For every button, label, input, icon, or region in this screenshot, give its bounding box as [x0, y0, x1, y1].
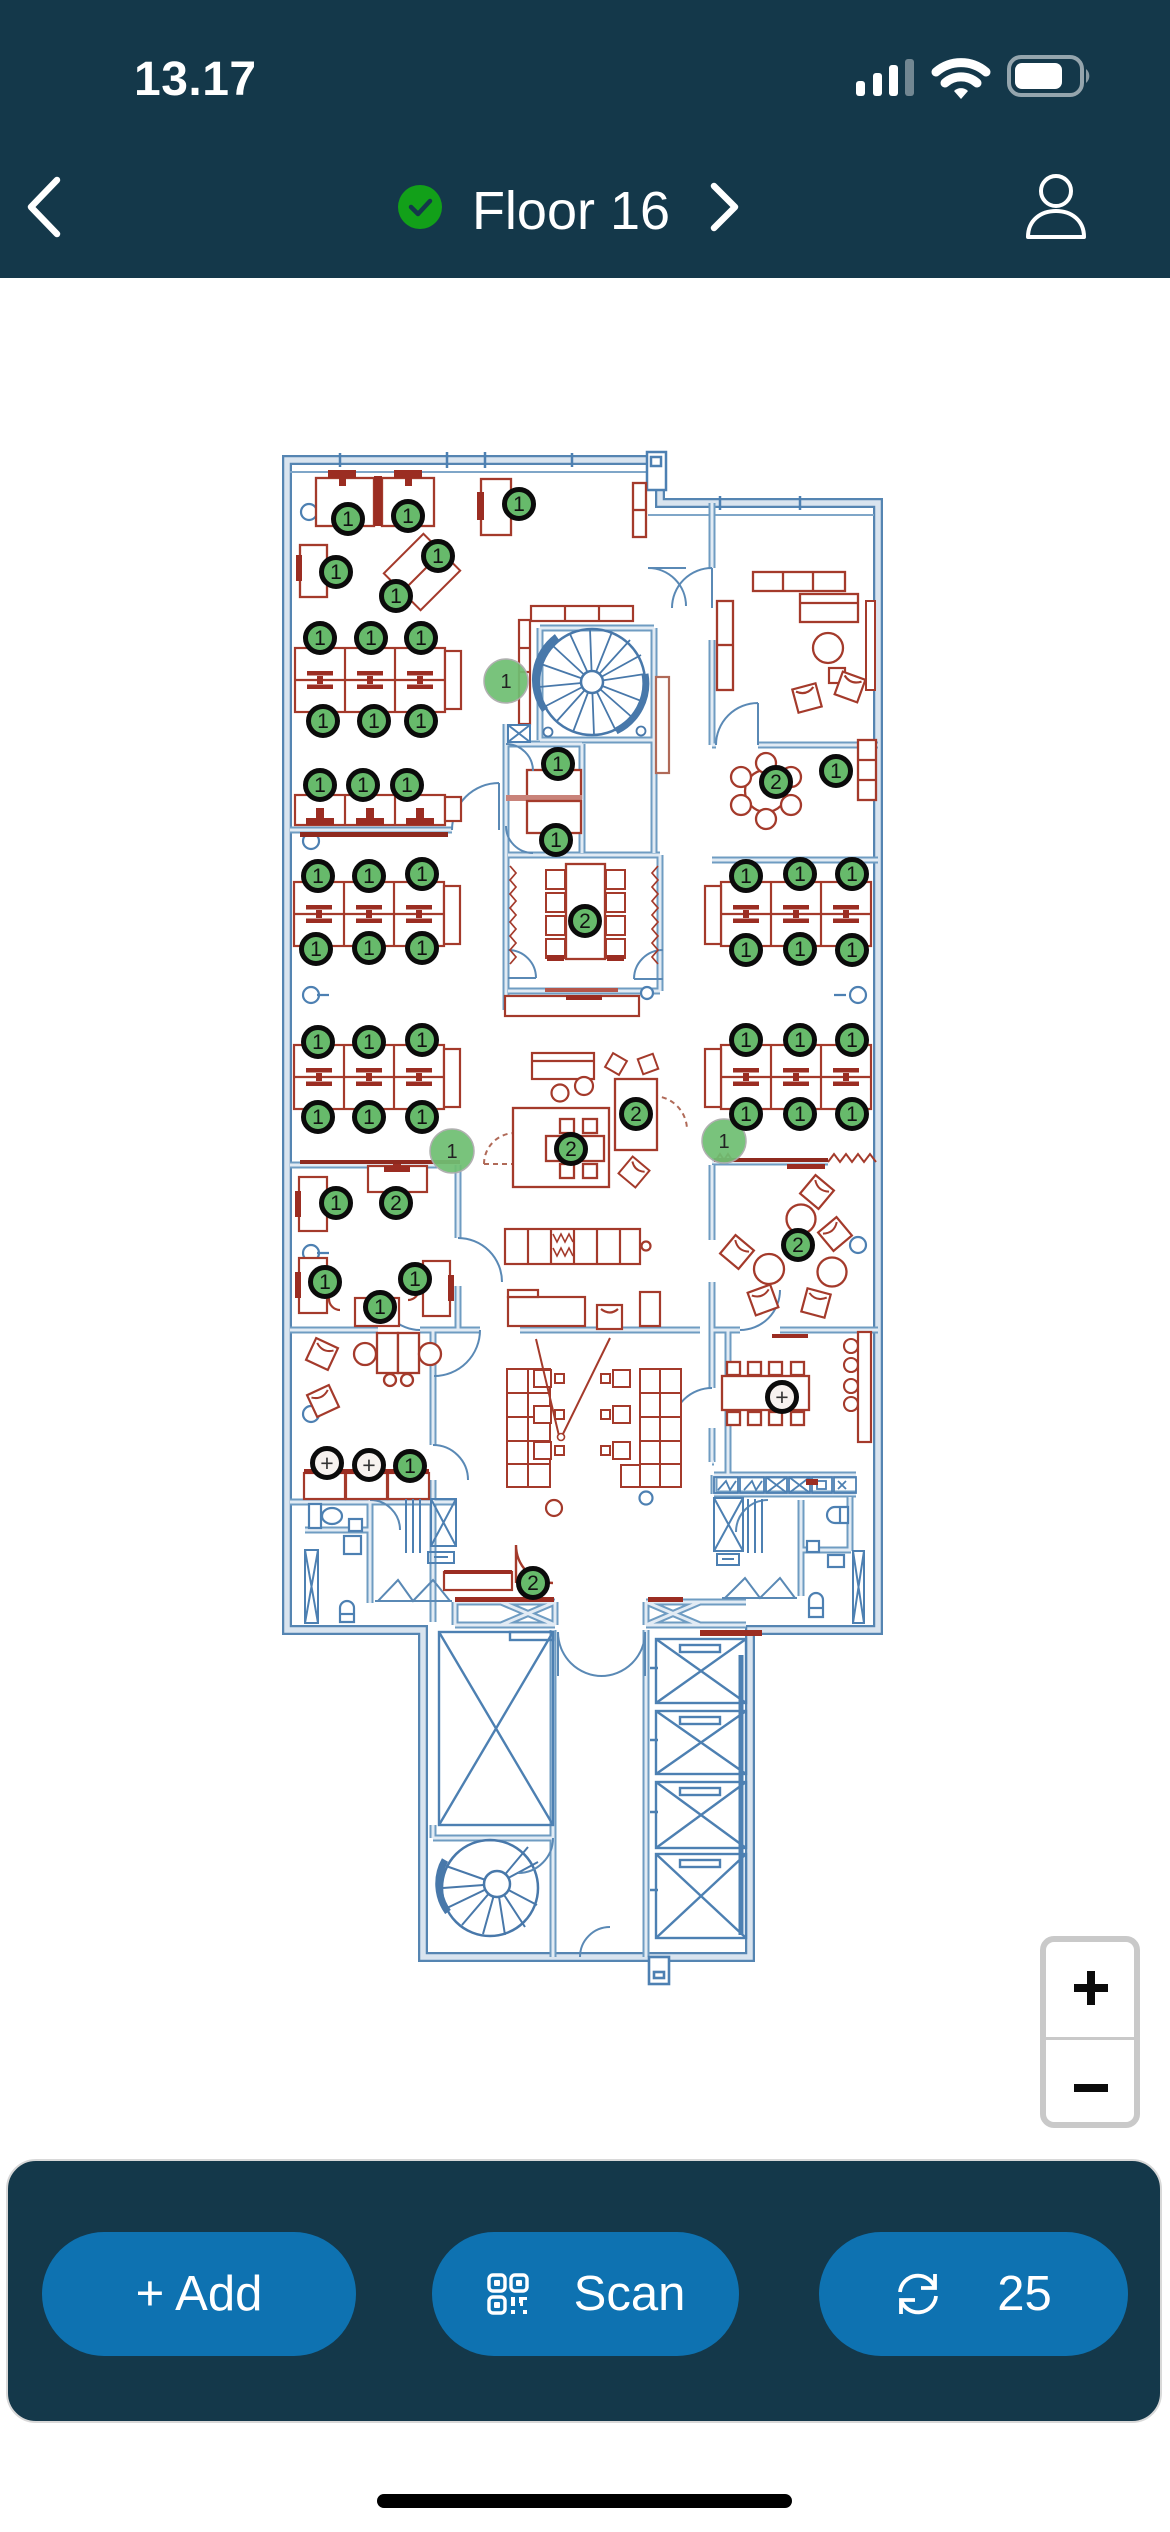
svg-text:1: 1 [794, 938, 806, 961]
svg-text:1: 1 [718, 1131, 729, 1153]
svg-text:1: 1 [312, 1106, 324, 1129]
svg-text:1: 1 [416, 863, 428, 886]
svg-text:2: 2 [565, 1138, 577, 1161]
svg-text:1: 1 [432, 545, 444, 568]
svg-text:+: + [775, 1384, 788, 1410]
svg-text:1: 1 [368, 710, 380, 733]
svg-text:1: 1 [312, 1031, 324, 1054]
svg-text:1: 1 [513, 493, 525, 516]
svg-text:1: 1 [409, 1268, 421, 1291]
svg-text:1: 1 [310, 938, 322, 961]
svg-text:1: 1 [312, 865, 324, 888]
svg-text:1: 1 [314, 627, 326, 650]
svg-text:1: 1 [740, 939, 752, 962]
svg-text:1: 1 [500, 671, 511, 693]
svg-text:1: 1 [363, 937, 375, 960]
svg-text:1: 1 [830, 760, 842, 783]
svg-text:1: 1 [446, 1141, 457, 1163]
svg-text:1: 1 [550, 829, 562, 852]
svg-text:1: 1 [846, 1029, 858, 1052]
svg-text:1: 1 [357, 774, 369, 797]
svg-text:+: + [362, 1452, 375, 1478]
svg-text:1: 1 [794, 863, 806, 886]
svg-text:1: 1 [415, 710, 427, 733]
svg-text:1: 1 [404, 1455, 416, 1478]
svg-text:1: 1 [846, 939, 858, 962]
svg-text:1: 1 [416, 937, 428, 960]
svg-text:1: 1 [740, 865, 752, 888]
svg-text:2: 2 [630, 1103, 642, 1126]
svg-text:1: 1 [374, 1296, 386, 1319]
svg-text:1: 1 [794, 1103, 806, 1126]
svg-text:1: 1 [363, 1031, 375, 1054]
svg-text:1: 1 [363, 1106, 375, 1129]
svg-text:1: 1 [401, 774, 413, 797]
svg-text:2: 2 [527, 1572, 539, 1595]
svg-text:2: 2 [579, 910, 591, 933]
svg-text:2: 2 [792, 1234, 804, 1257]
svg-text:1: 1 [330, 561, 342, 584]
svg-text:1: 1 [402, 505, 414, 528]
svg-text:1: 1 [794, 1029, 806, 1052]
svg-text:1: 1 [846, 1103, 858, 1126]
svg-text:1: 1 [365, 627, 377, 650]
svg-text:1: 1 [552, 753, 564, 776]
svg-text:1: 1 [330, 1192, 342, 1215]
svg-text:2: 2 [390, 1192, 402, 1215]
svg-text:1: 1 [846, 863, 858, 886]
svg-text:1: 1 [363, 865, 375, 888]
svg-text:+: + [320, 1450, 333, 1476]
svg-text:1: 1 [390, 585, 402, 608]
svg-text:1: 1 [314, 774, 326, 797]
svg-text:1: 1 [740, 1103, 752, 1126]
svg-text:1: 1 [416, 1029, 428, 1052]
svg-text:2: 2 [770, 771, 782, 794]
svg-text:1: 1 [342, 508, 354, 531]
svg-text:1: 1 [740, 1029, 752, 1052]
svg-text:1: 1 [319, 1271, 331, 1294]
svg-text:1: 1 [317, 710, 329, 733]
svg-text:1: 1 [415, 627, 427, 650]
svg-text:1: 1 [416, 1106, 428, 1129]
